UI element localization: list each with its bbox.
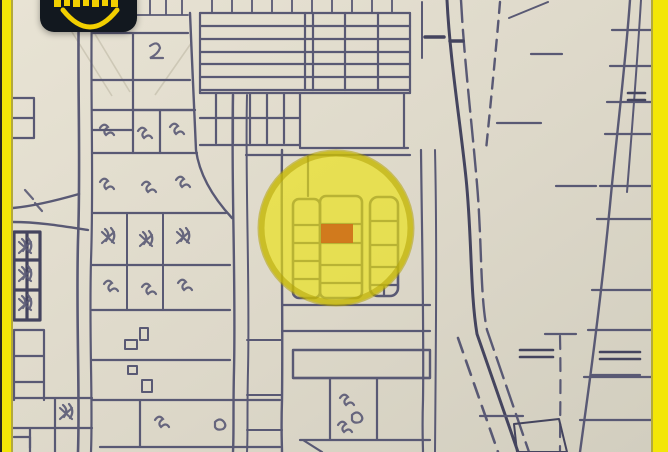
frame-left-stripe xyxy=(0,0,13,452)
frame-right-stripe xyxy=(651,0,668,452)
logo-text-cropped xyxy=(54,0,118,7)
logo-smile-icon xyxy=(63,10,117,27)
marked-plot xyxy=(321,224,353,243)
highlight-circle xyxy=(259,151,413,305)
map-drawing xyxy=(13,0,651,452)
logo-badge xyxy=(40,0,137,32)
listing-map-photo xyxy=(0,0,668,452)
